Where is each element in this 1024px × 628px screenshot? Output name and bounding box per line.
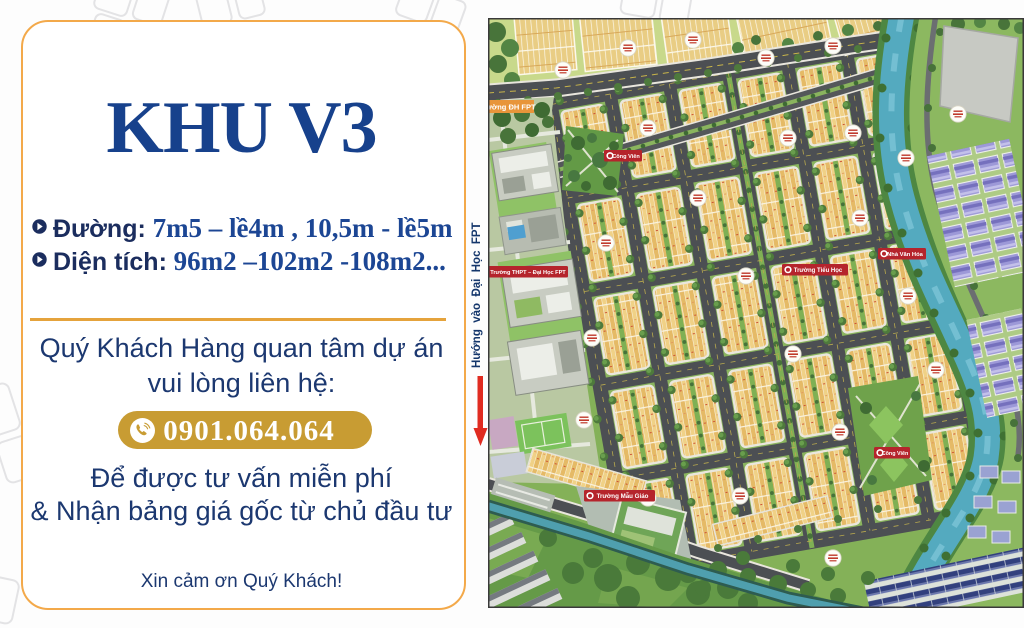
svg-text:Trường Tiểu Học: Trường Tiểu Học	[794, 267, 843, 274]
svg-text:Trường THPT – Đại Học FPT: Trường THPT – Đại Học FPT	[490, 270, 566, 276]
svg-text:Nhà Văn Hóa: Nhà Văn Hóa	[887, 252, 924, 258]
svg-text:Công Viên: Công Viên	[612, 154, 640, 160]
svg-text:ường ĐH FPT: ường ĐH FPT	[488, 103, 536, 112]
svg-text:Trường Mẫu Giáo: Trường Mẫu Giáo	[597, 493, 649, 500]
svg-text:Công Viên: Công Viên	[882, 451, 909, 457]
